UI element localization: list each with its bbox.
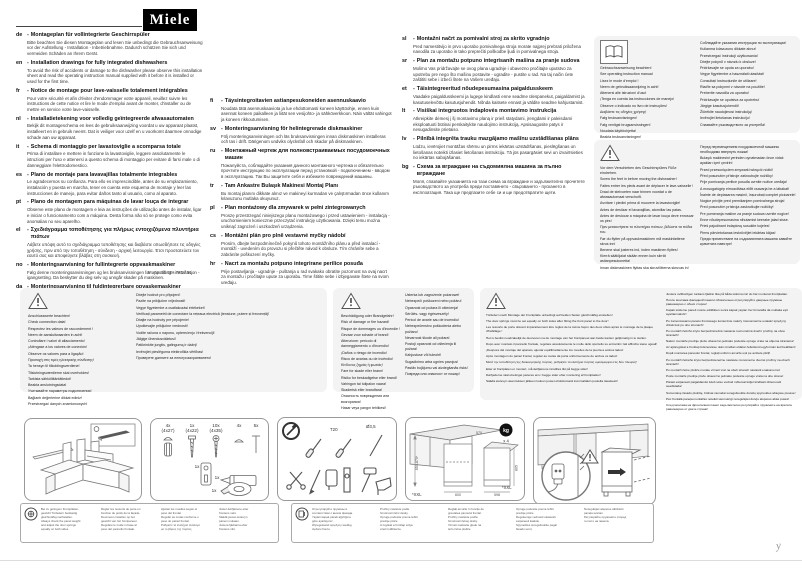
- note-line: Risk of damage or fire hazard!: [341, 320, 401, 325]
- language-body: Bekijk dit montageschema en lees de gebr…: [27, 123, 203, 140]
- language-body: Noudata tätä asennuskaaviota ja lue ehdo…: [221, 106, 392, 123]
- note-line: Pericol de avarie sau de incendiu!: [405, 318, 469, 323]
- dim-app-width: 598: [494, 493, 500, 497]
- note-line: Κίνδυνος ζημιάς ή φωτιάς!: [341, 363, 401, 368]
- note-line: Fare for skade eller brann!: [341, 369, 401, 374]
- tools-illustration: T20 Ø3,5: [278, 418, 394, 498]
- language-title: Täisintegreeritud nõudepesumasina paigal…: [417, 86, 553, 93]
- note-line: Usterka lub zagrożenie pożarowe!: [405, 293, 469, 298]
- springs-note-right: Justera ovillkorligen luckans fjädrar li…: [666, 292, 796, 413]
- note-line: Lisez le mode d'emploi !: [600, 79, 694, 84]
- note-line: Опасность повреждения или возгорания!: [341, 394, 401, 404]
- note-line: Risco de avarias ou de incêndio!: [341, 357, 401, 362]
- language-entry: lt-Visiškai integruotos indaplovės monta…: [402, 108, 587, 133]
- dash: -: [27, 60, 29, 67]
- note-line: Etter at frontplaten er montert, må dørf…: [486, 367, 658, 371]
- note-line: Kullanma kılavuzunu dikkate alınız!: [700, 47, 796, 52]
- note-line: ciężaru frontu.: [312, 528, 376, 532]
- dash: -: [27, 144, 29, 151]
- language-body: Proszę przestrzegać niniejszego planu mo…: [221, 213, 392, 230]
- dim-height: 850-870*: [415, 455, 419, 470]
- note-line: Følg bruksanvisningen!: [600, 116, 694, 121]
- language-entry: sr-Plan za montažu potpuno integrisanih …: [402, 58, 587, 83]
- language-title: Installation drawings for fully integrat…: [31, 60, 168, 67]
- note-line: Draai de stelvoeten naar binnen voordat …: [600, 190, 694, 200]
- note-line: Gebrauchsanweisung beachten!: [600, 66, 694, 71]
- multiplier-label: x 4: [503, 439, 509, 444]
- language-entry: bg-Схема за вграждане на съдомиялна маши…: [402, 164, 587, 196]
- language-title: Monteringsanvisning för helintegrerade d…: [225, 126, 363, 133]
- language-code: nl: [16, 116, 25, 123]
- language-code: lv: [402, 136, 411, 143]
- language-title: Visiškai integruotos indaplovės montavim…: [417, 108, 557, 115]
- dash: -: [27, 88, 29, 95]
- installation-plan-page: Miele de-Montageplan für vollintegrierte…: [0, 0, 802, 569]
- note-line: Pridržavajte se uputstva za upotrebu!: [700, 98, 796, 103]
- footnote-xxl-right: *XXL: [502, 485, 512, 490]
- language-body: Pred namestitvijo in prvo uporabo pomiva…: [413, 44, 587, 55]
- manual-note-panel: Gebrauchsanweisung beachten!See operatin…: [594, 36, 800, 133]
- note-line: Hasar veya yangın tehlikesi!: [341, 406, 401, 411]
- note-line: Riaďte sa pokynmi v návode na použitie!: [700, 85, 796, 90]
- note-line: The door springs must be set equally on …: [486, 319, 658, 323]
- language-body: Följ monteringsanvisningen och läs bruks…: [221, 134, 392, 145]
- note-line: Het is beslist noodzakelijk de deurveren…: [486, 336, 658, 340]
- screw-head-icon: [24, 507, 38, 521]
- dash: -: [413, 36, 415, 43]
- dash: -: [27, 262, 29, 269]
- language-title: Tam Ankastre Bulaşık Makinesi Montaj Pla…: [225, 183, 338, 190]
- note-line: Kahjustuse või tuleoht!: [405, 353, 469, 358]
- note-line: Enne nõudepesumasina nihutamist keerake …: [700, 218, 796, 223]
- kit-label: 1x: [215, 475, 221, 480]
- language-entry: sl-Montažni načrt za pomivalni stroj za …: [402, 36, 587, 55]
- note-line: Pred posunutím prístroja zaskrutkujte no…: [700, 205, 796, 210]
- language-code: sr: [402, 58, 411, 65]
- note-line: Po montáži čelného krytu bezpodmienečne …: [666, 358, 796, 366]
- kit-label: 1x: [212, 488, 218, 493]
- note-line: Les ressorts de porte doivent impérative…: [486, 325, 658, 333]
- note-line: ¡Tenga en cuenta las instrucciones de ma…: [600, 97, 694, 102]
- language-body: Lūdzu, ievērojiet montāžas shēmu un pirm…: [413, 144, 587, 161]
- connection-note-right: Dbejte hodnot pro připojení!Pazite na pr…: [136, 293, 320, 362]
- note-line: Skaderisk eller brandfara!: [341, 388, 401, 393]
- damage-note-panel: Beschädigung oder Brandgefahr!Risk of da…: [333, 288, 474, 392]
- tool-label: Ø3,5: [366, 424, 376, 429]
- note-line: A mosogatógép elmozdítása előtt csavarja…: [700, 187, 796, 192]
- dash: -: [413, 86, 415, 93]
- note-line: Dbajte na hodnoty pre pripojenie!: [136, 318, 320, 323]
- note-line: Pre pomeranja mašine za pranje sudova uv…: [700, 212, 796, 217]
- language-title: Nacrt za montažu potpuno integrirane per…: [225, 261, 363, 268]
- fixing-kit-illustration: 4x (4x27) 1x (4x22) 10x (4x35) 4x 5x 1x …: [151, 419, 266, 498]
- note-line: Соблюдайте указания инструкции по эксплу…: [700, 41, 796, 46]
- note-line: Risiko for beskadigelse eller brand!: [341, 376, 401, 381]
- dash: -: [27, 227, 29, 241]
- fine-print-column: Juster dørfjærene etterfrontens vekt.Sää…: [219, 508, 275, 532]
- footer-divider: [0, 560, 802, 561]
- note-line: Após montagem do painel frontal, regular…: [486, 354, 658, 358]
- note-line: Gevaar voor schade of brand!: [341, 333, 401, 338]
- note-line: Beakta anslutningsdata!: [28, 383, 128, 388]
- note-line: Vegye figyelembe a használati utasítást!: [700, 72, 796, 77]
- note-line: Før du flytter på oppvaskmaskinen må mas…: [600, 237, 694, 247]
- note-line: Tarkista sähköliitäntätiedot!: [28, 377, 128, 382]
- note-line: След монтажа на фронталния панел задължи…: [666, 403, 796, 411]
- note-line: Ta hensyn til tilkoblingsverdiene!: [28, 364, 128, 369]
- language-body: Пожалуйста, соблюдайте указания данного …: [221, 163, 392, 180]
- header-rule: [16, 26, 142, 27]
- note-line: Dopo aver montato il pannello frontale, …: [486, 342, 658, 346]
- note-line: Patikrinkite jungtis, galingumą ir dažnį…: [136, 343, 320, 348]
- language-entry: es-Plano de montaje para lavavajillas to…: [16, 172, 203, 197]
- fine-print-column: Ajustar los muelles según elpeso del fro…: [161, 508, 219, 532]
- note-line: Dbejte pokynů v návodu k obsluze!: [700, 60, 796, 65]
- note-line: Po montáži čelního krytu bezpodmínečně n…: [666, 329, 796, 337]
- manual-note-right: Соблюдайте указания инструкции по эксплу…: [700, 41, 796, 129]
- note-line: Innan diskmaskinen flyttas ska skruvfött…: [600, 266, 694, 271]
- fine-print-column: Отрегулируйте пружины всоответствии с ве…: [312, 508, 376, 532]
- note-line: Noudata käyttöohjetta!: [600, 129, 694, 134]
- language-column-2: fi-Täysintegroitavien astianpesukoneiden…: [210, 98, 392, 289]
- dim-width: 600: [455, 493, 461, 497]
- note-line: frontens vikt.: [219, 528, 275, 532]
- note-line: Neem de gebruiksaanwijzing in acht!: [600, 85, 694, 90]
- note-line: peso del pannello frontale.: [101, 528, 159, 532]
- language-title: Plan montażowy dla zmywarek w pełni zint…: [225, 205, 366, 212]
- language-column-1: de-Montageplan für vollintegrierte Gesch…: [16, 32, 203, 306]
- language-code: no: [16, 262, 25, 269]
- note-line: Tilslutningsværdierne skal overholdes!: [28, 371, 128, 376]
- language-body: Observe este plano de montagem e leia as…: [27, 207, 203, 224]
- kit-label: (4x35): [209, 428, 222, 433]
- language-entry: sv-Monteringsanvisning för helintegrerad…: [210, 126, 392, 145]
- feet-note-right: Перед перемещением посудомоечной машины …: [700, 145, 796, 248]
- note-line: Προσοχή στις τιμές ηλεκτρικής σύνδεσης!: [28, 358, 128, 363]
- push-in-illustration: [534, 418, 653, 502]
- note-line: Sumontavę fasado plokštę, būtinai vienod…: [666, 391, 796, 395]
- language-code: bg: [402, 164, 411, 178]
- note-line: Vor dem Verschieben des Geschirrspülers …: [600, 166, 694, 176]
- note-line: Prije pomicanja perilice posuđa uvrnite …: [700, 180, 796, 185]
- note-line: Benene skal justeres ind, inden maskinen…: [600, 248, 694, 253]
- warning-triangle-icon: [341, 292, 361, 315]
- note-line: Faites entrer les pieds avant de déplace…: [600, 184, 694, 189]
- language-title: Схема за вграждане на съдомиялна машина …: [417, 164, 587, 178]
- note-line: Türfedern nach Montage der Frontplatte u…: [486, 313, 658, 317]
- language-code: hr: [210, 261, 219, 268]
- note-line: Az ajtórugókat a frontlap felszerelése u…: [666, 345, 796, 349]
- note-line: Dbejte hodnot pro připojení!: [136, 293, 320, 298]
- note-line: Antes de deslocar a máquina de lavar lou…: [600, 214, 694, 224]
- language-entry: tr-Tam Ankastre Bulaşık Makinesi Montaj …: [210, 183, 392, 202]
- note-line: Vahingon tai tulipalon vaara!: [341, 382, 401, 387]
- packaging-illustration: [25, 419, 139, 498]
- language-title: Notice de montage pour lave-vaisselle to…: [31, 88, 188, 95]
- fine-print-column: Bei zu geringem Frontplatten-gewicht Tür…: [41, 508, 99, 532]
- open-book-icon: [600, 40, 628, 64]
- note-line: με το βάρος της πόρτας.: [161, 528, 219, 532]
- language-body: Моля, спазвайте указанията на тази схема…: [413, 179, 587, 196]
- note-line: fasado svorį.: [516, 528, 580, 532]
- language-title: Plan za montažu potpuno integrisanih maš…: [417, 58, 580, 65]
- language-title: Installatietekening voor volledig geïnte…: [31, 116, 194, 123]
- note-line: ¡Aténgase a los valores de conexión!: [28, 345, 128, 350]
- note-line: ¡Después del montaje del aparato, ajusta…: [486, 348, 658, 352]
- kit-label: 5x: [254, 423, 260, 428]
- note-line: Przed przesunięciem zmywarki wkręcić nóż…: [700, 168, 796, 173]
- note-line: Følg venligst brugsanvisningen!: [600, 123, 694, 128]
- dash: -: [221, 183, 223, 190]
- language-entry: fr-Notice de montage pour lave-vaisselle…: [16, 88, 203, 113]
- note-line: Nevarnost škode ali požara!: [405, 336, 469, 341]
- language-entry: cs-Montážní plán pro plně vestavné myčky…: [210, 233, 392, 258]
- language-code: el: [16, 227, 25, 241]
- language-code: lt: [402, 108, 411, 115]
- screwdriver-badge-icon: [283, 423, 299, 439]
- language-body: Le agradecemos su confianza. Para ello e…: [27, 179, 203, 196]
- note-line: Kierrä säätöjalat sisään ennen kuin siir…: [600, 254, 694, 264]
- damage-note-right: Usterka lub zagrożenie pożarowe!Nebezpeč…: [405, 293, 469, 379]
- niche-dimensions-panel: 850-870* 600 570 598 805 kg x 4 *XXL *XX…: [405, 417, 525, 501]
- language-code: pl: [210, 205, 219, 212]
- note-line: Respectez les valeurs de raccordement !: [28, 327, 128, 332]
- note-line: Beschädigung oder Brandgefahr!: [341, 314, 401, 319]
- language-code: ru: [210, 148, 219, 162]
- language-entry: en-Installation drawings for fully integ…: [16, 60, 203, 85]
- tools-panel: T20 Ø3,5: [277, 417, 397, 501]
- note-line: Controllare i valori di allacciamento!: [28, 339, 128, 344]
- dash: -: [221, 148, 223, 162]
- note-line: Pazite na priključne vrijednosti!: [136, 299, 320, 304]
- language-code: sl: [402, 36, 411, 43]
- note-line: Διαβάστε τις οδηγίες χρήσης!: [600, 110, 694, 115]
- note-line: Opasnost od požara ili oštećenja!: [405, 306, 469, 311]
- language-body: Pour votre sécurité et afin d'éviter d'e…: [27, 96, 203, 113]
- language-code: it: [16, 144, 25, 151]
- language-column-3: sl-Montažni načrt za pomivalni stroj za …: [402, 36, 587, 199]
- feet-note-panel: Vor dem Verschieben des Geschirrspülers …: [594, 140, 800, 264]
- warning-triangle-icon: [600, 144, 620, 167]
- note-line: Ievērojiet lietošanas instrukciju!: [700, 116, 796, 121]
- language-entry: pt-Plano de montagem para máquinas de la…: [16, 199, 203, 224]
- fine-print-column: Pružiny nastavte podlehmotnosti čelní de…: [380, 508, 444, 532]
- language-body: Molimo Vas pridržavajte se ovog plana ug…: [413, 66, 587, 83]
- note-line: Postoji opasnost od oštećenja ili požara…: [405, 342, 469, 352]
- language-body: Prima di installare e mettere in funzion…: [27, 151, 203, 168]
- panel-tool-icon: [295, 507, 309, 521]
- registration-mark: y: [775, 540, 782, 553]
- note-line: Vegye figyelembe a csatlakozási értékeke…: [136, 306, 320, 311]
- note-line: Bağlantı değerlerine dikkat ediniz!: [28, 396, 128, 401]
- language-code: en: [16, 60, 25, 67]
- dash: -: [413, 164, 415, 178]
- fine-print-column: Opruge podesite prema težiniprednje ploč…: [516, 508, 580, 532]
- language-title: Schema di montaggio per lavastoviglie a …: [31, 144, 181, 151]
- note-line: See operating instruction manual: [600, 72, 694, 77]
- note-line: Przestrzegać instrukcji użytkowania!: [700, 54, 796, 59]
- niche-illustration: 850-870* 600 570 598 805 kg x 4 *XXL *XX…: [406, 418, 522, 498]
- note-line: Check connection data!: [28, 320, 128, 325]
- note-line: Upoštevajte priključne vrednosti!: [136, 324, 320, 329]
- dim-app-height: 805: [515, 465, 519, 471]
- material-number: M.-Nr. 10 006 780 / 01: [148, 270, 192, 275]
- dash: -: [413, 136, 415, 143]
- language-title: Monteringsanvisning for fullintegrerte o…: [31, 262, 175, 269]
- note-line: Перед перемещением посудомоечной машины …: [700, 145, 796, 155]
- footnote-box-1: Bei zu geringem Frontplatten-gewicht Tür…: [20, 503, 279, 543]
- note-line: ¡Daños o riesgo de incendio!: [341, 351, 401, 356]
- note-line: equally on both sides.: [41, 528, 99, 532]
- miele-logo: Miele: [143, 9, 197, 31]
- dash: -: [413, 58, 415, 65]
- footnote-xxl-left: *XXL: [412, 492, 422, 497]
- fine-print-column: Régler les ressorts de porte enfonction …: [101, 508, 159, 532]
- note-line: Pēc frontālā paneļa montāžas noteikti vi…: [666, 397, 796, 401]
- language-title: Plano de montaje para lavavajillas total…: [31, 172, 178, 179]
- note-line: Preberite navodila za uporabo!: [700, 91, 796, 96]
- push-in-panel: [533, 417, 656, 505]
- packaging-panel: [24, 418, 142, 501]
- language-code: sv: [210, 126, 219, 133]
- fixing-kit-panel: 4x (4x27) 1x (4x22) 10x (4x35) 4x 5x 1x …: [150, 418, 269, 501]
- language-entry: fi-Täysintegroitavien astianpesukoneiden…: [210, 98, 392, 123]
- note-line: Před posunutím přístroje zašroubujte nož…: [700, 174, 796, 179]
- note-line: Nebezpečenstvo poškodenia alebo požiaru!: [405, 324, 469, 334]
- language-code: et: [402, 86, 411, 93]
- note-line: Dørfjederne skal ubetinget justeres ens …: [486, 373, 658, 377]
- language-body: Atkreipkite dėmesį į šį montavimo planą …: [413, 116, 587, 133]
- note-line: Justera ovillkorligen luckans fjädrar li…: [666, 292, 796, 296]
- language-entry: de-Montageplan für vollintegrierte Gesch…: [16, 32, 203, 57]
- kit-label: 1x: [195, 464, 201, 469]
- language-entry: pl-Plan montażowy dla zmywarek w pełni z…: [210, 205, 392, 230]
- note-line: Pastāv bojājumu vai aizdegšanās risks!: [405, 366, 469, 371]
- note-line: Consultați Instrucțiunile de utilizare!: [700, 79, 796, 84]
- note-line: Nebezpečí poškození nebo požáru!: [405, 299, 469, 304]
- language-body: Prosím, dbejte bezpodmínečně pokynů toho…: [221, 241, 392, 258]
- language-code: es: [16, 172, 25, 179]
- note-line: Vodite računa o naponu, opterećenju i fr…: [136, 331, 320, 336]
- note-line: Sérülés- vagy égésveszély!: [405, 312, 469, 317]
- note-line: Przestrzegać danych znamionowych!: [28, 402, 128, 407]
- note-line: Avvitare i piedini prima di muovere la l…: [600, 201, 694, 206]
- note-line: После монтажа фасадной панели обязательн…: [666, 298, 796, 306]
- language-entry: it-Schema di montaggio per lavastoviglie…: [16, 144, 203, 169]
- note-line: Nakon montaže prednje ploče obavezno jed…: [666, 339, 796, 343]
- language-code: pt: [16, 199, 25, 206]
- note-line: Attenzione: pericolo di danneggiamento o…: [341, 339, 401, 349]
- note-line: Nogice privijte pred premikanjem pomival…: [700, 199, 796, 204]
- language-entry: hr-Nacrt za montažu potpuno integrirane …: [210, 261, 392, 286]
- damage-note-left: Beschädigung oder Brandgefahr!Risk of da…: [341, 314, 401, 412]
- language-entry: ru-Монтажный чертеж для полновстраиваемы…: [210, 148, 392, 180]
- language-body: Bu montaj planını dikkate alınız ve maki…: [221, 191, 392, 202]
- note-line: Bulaşık makinesini yerinden oynatmadan ö…: [700, 156, 796, 166]
- dim-depth: 570: [476, 431, 482, 435]
- language-entry: et-Täisintegreeritud nõudepesumasina pai…: [402, 86, 587, 105]
- springs-note-left: Türfedern nach Montage der Frontplatte u…: [486, 313, 658, 385]
- note-line: Posle montaže prednje ploče obavezno jed…: [666, 374, 796, 378]
- kit-label: (4x22): [185, 428, 198, 433]
- note-line: Проверете данните за електрозахранването…: [136, 356, 320, 361]
- fine-print-column: Noregulējiet atsperes atbilstošipaneļa s…: [584, 508, 648, 524]
- note-line: Po zamontowaniu panelu frontowego koniec…: [666, 319, 796, 327]
- kit-label: (4x27): [161, 428, 174, 433]
- language-code: cs: [210, 233, 219, 240]
- dash: -: [27, 172, 29, 179]
- note-line: Ievērojiet pieslēguma elektrotīkla vērtī…: [136, 350, 320, 355]
- feet-note-left: Vor dem Verschieben des Geschirrspülers …: [600, 166, 694, 272]
- language-title: Pilnībā integrēta trauku mazgājamo mašīn…: [417, 136, 579, 143]
- note-line: Преди преместване на съдомиялната машина…: [700, 237, 796, 247]
- note-line: Screw the feet in before moving the dish…: [600, 177, 694, 182]
- language-title: Σχεδιάγραμμα τοποθέτησης για πλήρως εντο…: [31, 227, 203, 241]
- language-body: Vaadake paigaldusskeemi ja lugege kindla…: [413, 94, 587, 105]
- dash: -: [221, 98, 223, 105]
- magnifier-detail: [542, 452, 590, 500]
- note-line: Žiūrėkite naudojimosi instrukciją!: [700, 110, 796, 115]
- note-line: Повреда или опасност от пожар!: [405, 372, 469, 377]
- note-line: Observe o indicado no livro de instruçõe…: [600, 104, 694, 109]
- note-line: Säädä etulevyn asennuksen jälkeen luukun…: [486, 379, 658, 383]
- dash: -: [27, 199, 29, 206]
- note-line: După montarea panoului frontal, reglați …: [666, 351, 796, 355]
- note-line: Pirms pārvietošanas ieskrūvējiet iekārta…: [700, 231, 796, 236]
- note-line: Observe os valores para a ligação!: [28, 352, 128, 357]
- kit-label: 4x: [237, 423, 243, 428]
- language-title: Montageplan für vollintegrierte Geschirr…: [31, 32, 150, 39]
- language-title: Plano de montagem para máquinas de lavar…: [31, 199, 189, 206]
- note-line: Risque de dommages ou d'incendie !: [341, 327, 401, 332]
- language-title: Монтажный чертеж для полновстраиваемых п…: [225, 148, 392, 162]
- door-springs-note-panel: Türfedern nach Montage der Frontplatte u…: [480, 288, 802, 400]
- weight-badge-label: kg: [503, 428, 509, 434]
- language-code: fr: [16, 88, 25, 95]
- warning-triangle-icon: [486, 292, 506, 315]
- language-title: Montažni načrt za pomivalni stroj za skr…: [417, 36, 550, 43]
- note-line: Antes de deslizar el lavavajillas, atorn…: [600, 208, 694, 213]
- note-line: Înainte de deplasarea mașinii, înșurubaț…: [700, 193, 796, 198]
- note-line: теглото на панела.: [584, 520, 648, 524]
- language-body: Λάβετε υπόψη αυτό το σχεδιάγραμμα τοποθέ…: [27, 242, 203, 259]
- dash: -: [221, 205, 223, 212]
- note-line: Μετά την τοποθέτηση της διακοσμητικής πό…: [486, 360, 658, 364]
- language-code: tr: [210, 183, 219, 190]
- dash: -: [27, 32, 29, 39]
- dash: -: [27, 116, 29, 123]
- language-entry: nl-Installatietekening voor volledig geï…: [16, 116, 203, 141]
- dash: -: [413, 108, 415, 115]
- note-line: Pridržavajte se uputa za uporabu!: [700, 66, 796, 71]
- language-body: Bitte beachten Sie diesen Montageplan un…: [27, 40, 203, 57]
- language-entry: el-Σχεδιάγραμμα τοποθέτησης για πλήρως ε…: [16, 227, 203, 259]
- fine-print-column: Reglați arcurile în funcție degreutatea …: [448, 508, 512, 532]
- manual-note-left: Gebrauchsanweisung beachten!See operatin…: [600, 66, 694, 141]
- note-line: Verificați parametrii de conectare la re…: [136, 312, 320, 317]
- note-line: Sugadinimo arba ugnies pavojus!: [405, 360, 469, 365]
- dash: -: [221, 261, 223, 268]
- footnote-box-2: Отрегулируйте пружины всоответствии с ве…: [291, 503, 654, 543]
- tool-label: T20: [330, 427, 338, 432]
- dash: -: [221, 126, 223, 133]
- note-line: Anschlusswerte beachten!: [28, 314, 128, 319]
- language-body: To avoid the risk of accidents or damage…: [27, 68, 203, 85]
- note-line: szerint állítsa be.: [380, 528, 444, 532]
- note-line: Neem de aansluitwaarden in acht!: [28, 333, 128, 338]
- note-line: Pärast esipaneeli paigaldamist tuleb uks…: [666, 380, 796, 388]
- note-line: težo čelne plošče.: [448, 528, 512, 532]
